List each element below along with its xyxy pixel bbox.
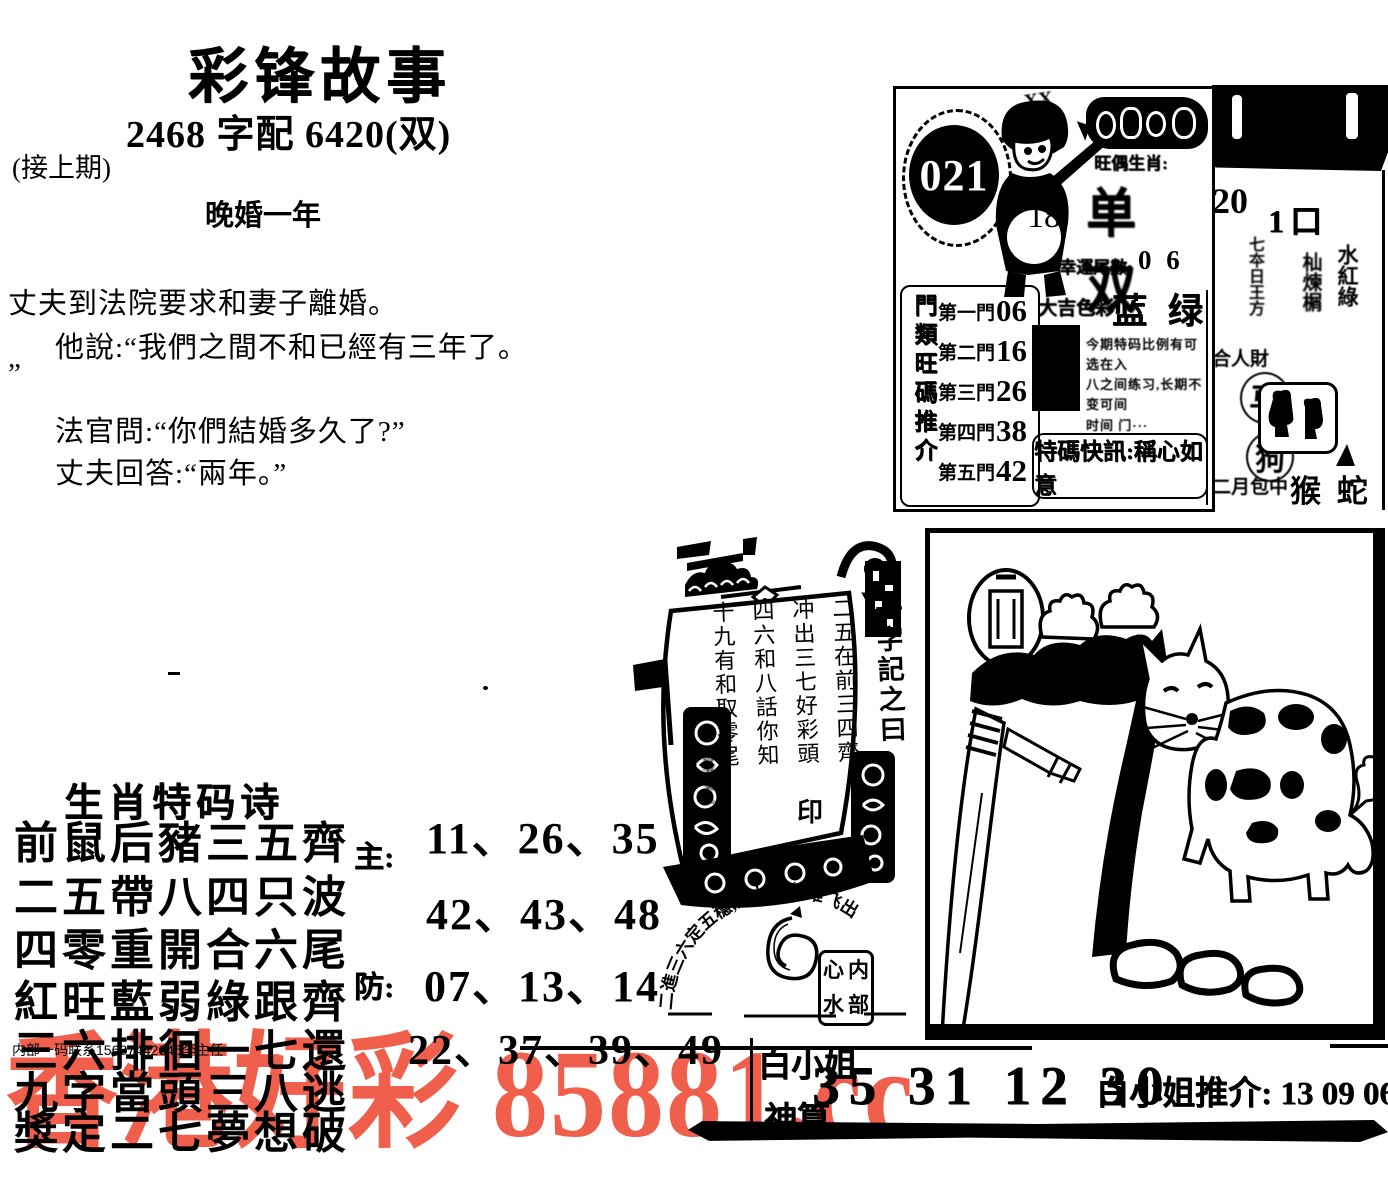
door-label: 第一門	[938, 298, 996, 325]
arc-stamp-icon: 二進三六定五穩,四九小數难飞出	[640, 862, 940, 1024]
lucky-tail-label: 幸運尾數:	[1059, 253, 1133, 278]
story-line: ”	[8, 358, 22, 391]
door-row: 第二門 16	[938, 331, 1036, 371]
poem-line: 二五帶八四只波	[14, 876, 350, 920]
sidebar-rule	[1382, 170, 1385, 510]
door-value: 06	[996, 293, 1027, 329]
ink-blot-icon	[1336, 444, 1355, 466]
sidebar-fortune: 合人財	[1212, 344, 1269, 371]
black-square-icon	[1032, 325, 1080, 411]
door-label: 第二門	[938, 338, 996, 365]
sail-seal-char: 印	[797, 792, 823, 829]
redacted-bar-icon	[1212, 85, 1388, 171]
door-row: 第五門 42	[938, 451, 1036, 491]
poem-line: 前鼠后豬三五齊	[14, 822, 350, 866]
story-line: 他說:“我們之間不和已經有三年了。	[55, 324, 528, 366]
riddle-drawing-icon	[930, 533, 1373, 1024]
door-label: 第五門	[938, 458, 996, 485]
sail-verse: 一字記之曰: 二五在前三四齊 冲出三七好彩頭 四六和八話你知 十九有和取零尾	[697, 594, 916, 883]
bubble-banner-icon	[1086, 97, 1208, 149]
page-subtitle: 2468 字配 6420(双)	[126, 103, 451, 158]
door-label: 第三門	[938, 378, 996, 405]
seal-char: 部	[846, 988, 871, 1023]
sail-verse-line: 十九有和取零尾	[705, 600, 747, 883]
zodiac-figures-icon	[1261, 385, 1329, 445]
color-label: 大吉色彩:	[1038, 293, 1120, 320]
story-line: 丈夫到法院要求和妻子離婚。	[8, 280, 398, 322]
slogan-box: 特碼快訊:稱心如意	[1032, 433, 1208, 499]
poem-line: 四零重開合六尾	[14, 929, 350, 973]
sidebar-date: 1口	[1268, 196, 1328, 242]
picture-box	[925, 528, 1385, 1040]
guard-numbers-label: 防:	[354, 962, 394, 1006]
door-value: 38	[996, 413, 1027, 449]
doors-title: 門類旺碼推介	[906, 293, 940, 499]
sidebar-column-text: 水紅綠	[1332, 244, 1362, 344]
page-title: 彩锋故事	[188, 28, 452, 115]
door-value: 42	[996, 453, 1027, 489]
doors-panel: 門類旺碼推介 第一門 06 第二門 16 第三門 26 第四門 38	[900, 285, 1040, 507]
main-numbers-row: 11、26、35	[426, 802, 660, 866]
sail-side-note: 香港女儿	[698, 752, 717, 832]
sidebar-column-text: 杣煉榍	[1296, 252, 1325, 352]
inner-tips-seal: 心 内 水 部	[818, 950, 874, 1026]
door-value: 16	[996, 333, 1027, 369]
guard-numbers-row: 07、13、14	[424, 950, 660, 1014]
scribble-mark: XX	[1023, 87, 1055, 114]
scan-speck	[483, 686, 488, 690]
seal-char: 水	[821, 988, 846, 1023]
tip-sheet-page: 彩锋故事 2468 字配 6420(双) (接上期) 晚婚一年 丈夫到法院要求和…	[0, 0, 1388, 1177]
color-value: 蓝 绿	[1112, 283, 1209, 334]
promo-note-line: 八之间练习,长期不变可间	[1086, 375, 1208, 415]
continued-label: (接上期)	[12, 146, 111, 185]
promo-box: 021 18 XX 旺偶生肖: 单双 幸運尾數: 0 6	[893, 86, 1215, 512]
sidebar-number: 20	[1212, 180, 1248, 222]
zodiac-figures-box	[1258, 382, 1338, 454]
month-zodiac: 猴 蛇	[1290, 466, 1372, 511]
sail-verse-line: 冲出三七好彩頭	[785, 598, 827, 881]
odd-even-label: 旺偶生肖:	[1094, 149, 1168, 174]
story-title: 晚婚一年	[205, 192, 321, 234]
promo-note-line: 今期特码比例有可选在入	[1086, 335, 1208, 375]
seal-char: 心	[821, 953, 846, 988]
bottom-rule	[1330, 1044, 1388, 1048]
tipster-recommendation: 白小姐推介: 13 09 06 41 17	[1096, 1066, 1388, 1114]
sail-verse-line: 四六和八話你知	[745, 599, 787, 882]
watermark-text: 香港好彩 85881.cc	[6, 1032, 915, 1157]
sidebar-rule	[1206, 290, 1208, 505]
sail-verse-line: 二五在前三四齊	[825, 596, 867, 879]
boy-shirt-number: 18	[1014, 199, 1074, 236]
door-row: 第一門 06	[938, 291, 1036, 331]
promo-note: 今期特码比例有可选在入 八之间练习,长期不变可间 时间 门···	[1086, 335, 1208, 436]
scan-speck	[168, 672, 180, 675]
door-row: 第四門 38	[938, 411, 1036, 451]
door-row: 第三門 26	[938, 371, 1036, 411]
lucky-tail-value: 0 6	[1138, 245, 1184, 276]
story-line: 丈夫回答:“兩年。”	[55, 450, 287, 492]
door-value: 26	[996, 373, 1027, 409]
issue-number: 021	[920, 150, 989, 201]
door-label: 第四門	[938, 418, 996, 445]
month-label: 二月包中	[1212, 472, 1288, 499]
main-numbers-label: 主:	[354, 832, 394, 876]
poem-line: 紅旺藍弱綠跟齊	[14, 981, 350, 1025]
seal-char: 内	[846, 953, 871, 988]
story-line: 法官問:“你們結婚多久了?”	[55, 408, 406, 450]
main-numbers-row: 42、43、48	[426, 878, 662, 942]
